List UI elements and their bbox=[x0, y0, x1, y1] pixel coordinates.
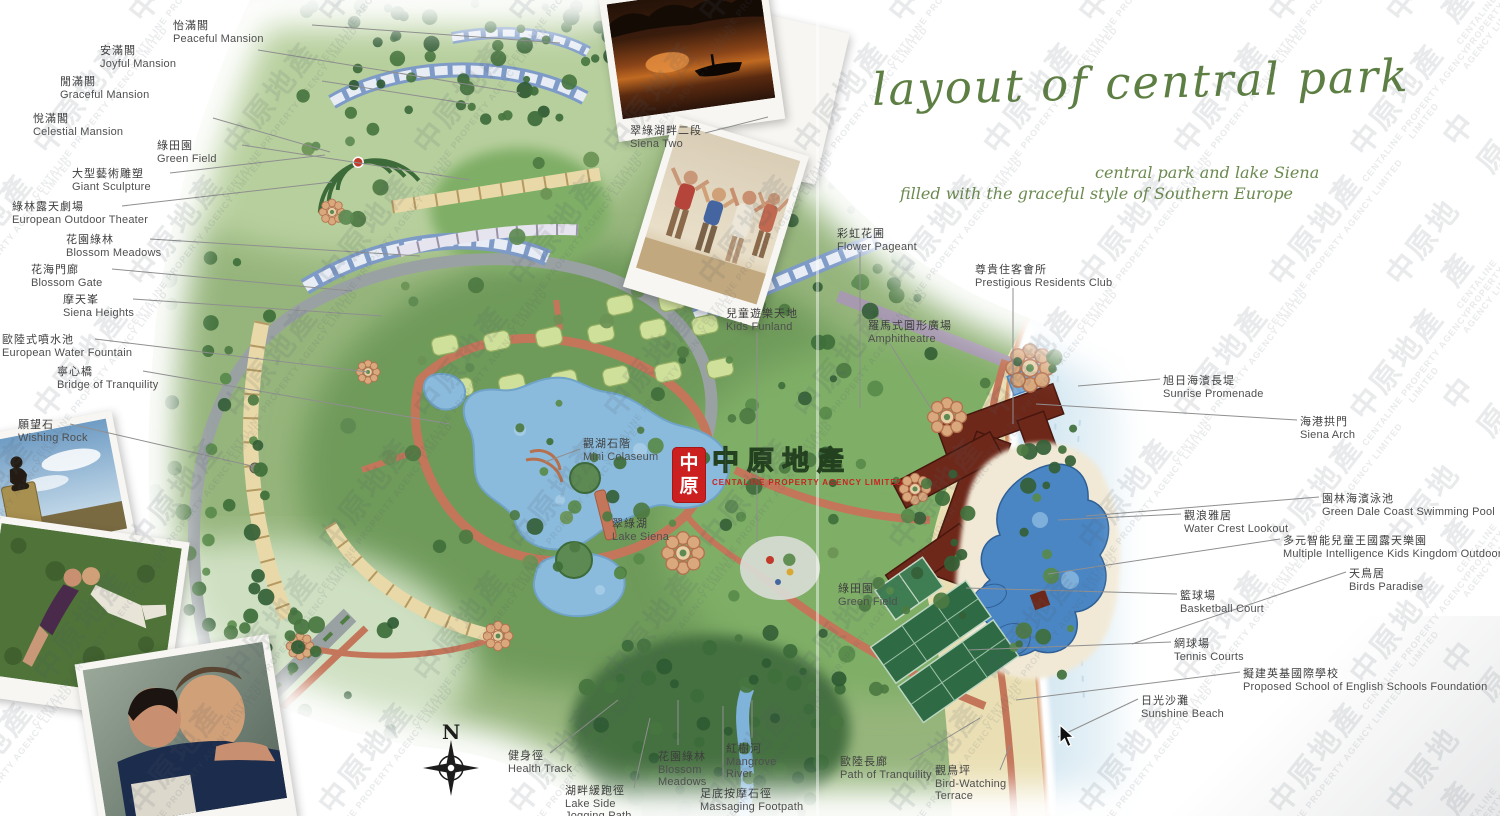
subtitle-line-1: central park and lake Siena bbox=[1095, 163, 1319, 182]
compass-rose: N bbox=[418, 722, 484, 803]
photo-embracing-couple bbox=[75, 634, 298, 816]
page-corner-shade bbox=[1140, 616, 1500, 816]
centaline-name-cjk: 中原地產 bbox=[712, 447, 903, 477]
seal-char-top: 中 bbox=[679, 452, 698, 475]
compass-north-label: N bbox=[442, 720, 460, 744]
kids-funland-plaza bbox=[740, 536, 820, 600]
brochure-page: 怡滿閣Peaceful Mansion安滿閣Joyful Mansion閒滿閣G… bbox=[0, 0, 1500, 816]
subtitle-line-2: filled with the graceful style of Southe… bbox=[900, 184, 1293, 203]
centaline-name-en: CENTALINE PROPERTY AGENCY LIMITED bbox=[712, 478, 903, 487]
centaline-seal-icon: 中 原 bbox=[672, 447, 706, 503]
page-title: layout of central park bbox=[871, 49, 1410, 116]
seal-char-bottom: 原 bbox=[679, 475, 698, 498]
lake-island bbox=[570, 463, 600, 493]
european-water-fountain-shape bbox=[356, 360, 380, 384]
mouse-cursor bbox=[1058, 724, 1078, 748]
centaline-logo: 中 原 中原地產 CENTALINE PROPERTY AGENCY LIMIT… bbox=[672, 447, 903, 503]
page-fold-seam bbox=[816, 0, 819, 816]
page-title-block: layout of central park bbox=[872, 56, 1410, 109]
